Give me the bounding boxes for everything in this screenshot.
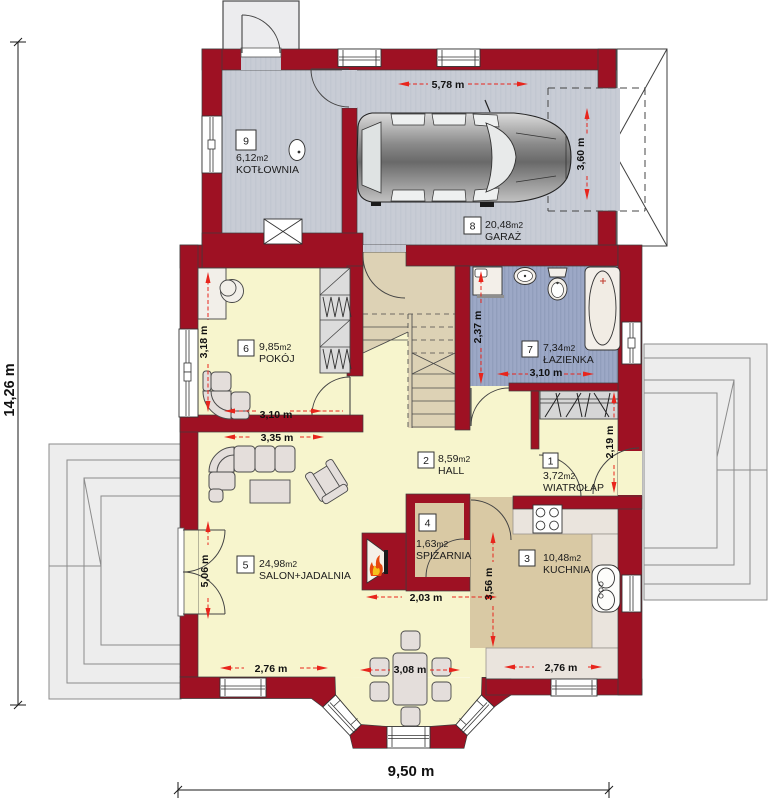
svg-text:3,60 m: 3,60 m: [575, 138, 587, 171]
svg-text:9: 9: [243, 136, 249, 148]
svg-text:8,59m2: 8,59m2: [438, 453, 471, 465]
svg-text:3,10 m: 3,10 m: [530, 367, 563, 379]
svg-text:HALL: HALL: [438, 465, 464, 477]
svg-text:KUCHNIA: KUCHNIA: [543, 564, 590, 576]
svg-text:5: 5: [243, 560, 249, 572]
svg-text:5,06 m: 5,06 m: [199, 555, 211, 588]
svg-text:3,56 m: 3,56 m: [483, 568, 495, 601]
svg-text:24,98m2: 24,98m2: [259, 558, 297, 570]
svg-text:7,34m2: 7,34m2: [543, 342, 576, 354]
svg-text:POKÓJ: POKÓJ: [259, 352, 295, 365]
svg-text:20,48m2: 20,48m2: [485, 219, 523, 231]
svg-text:3,35 m: 3,35 m: [261, 432, 294, 444]
svg-text:2,37 m: 2,37 m: [472, 311, 484, 344]
svg-text:6: 6: [243, 343, 249, 355]
svg-text:2: 2: [423, 455, 429, 467]
svg-text:2,76 m: 2,76 m: [545, 662, 578, 674]
svg-text:3: 3: [524, 553, 530, 565]
svg-text:3,72m2: 3,72m2: [543, 470, 576, 482]
svg-text:5,78 m: 5,78 m: [432, 79, 465, 91]
svg-text:3,18 m: 3,18 m: [198, 326, 210, 359]
svg-text:WIATROŁAP: WIATROŁAP: [543, 482, 604, 494]
svg-text:GARAŻ: GARAŻ: [485, 230, 522, 243]
svg-text:ŁAZIENKA: ŁAZIENKA: [543, 354, 594, 366]
svg-text:3,10 m: 3,10 m: [260, 409, 293, 421]
svg-text:9,50 m: 9,50 m: [388, 763, 435, 780]
svg-text:7: 7: [527, 344, 533, 356]
svg-text:14,26 m: 14,26 m: [2, 363, 18, 416]
svg-text:SALON+JADALNIA: SALON+JADALNIA: [259, 570, 351, 582]
svg-text:8: 8: [470, 221, 476, 233]
svg-text:3,08 m: 3,08 m: [394, 664, 427, 676]
svg-text:KOTŁOWNIA: KOTŁOWNIA: [236, 164, 299, 176]
svg-text:SPIŻARNIA: SPIŻARNIA: [416, 549, 471, 562]
svg-text:4: 4: [425, 518, 431, 530]
svg-text:2,76 m: 2,76 m: [255, 663, 288, 675]
svg-text:6,12m2: 6,12m2: [236, 152, 269, 164]
svg-text:9,85m2: 9,85m2: [259, 341, 292, 353]
svg-text:2,03 m: 2,03 m: [410, 592, 443, 604]
svg-text:1,63m2: 1,63m2: [416, 538, 449, 550]
svg-text:1: 1: [548, 456, 554, 468]
svg-text:10,48m2: 10,48m2: [543, 552, 581, 564]
svg-text:2,19 m: 2,19 m: [604, 426, 616, 459]
